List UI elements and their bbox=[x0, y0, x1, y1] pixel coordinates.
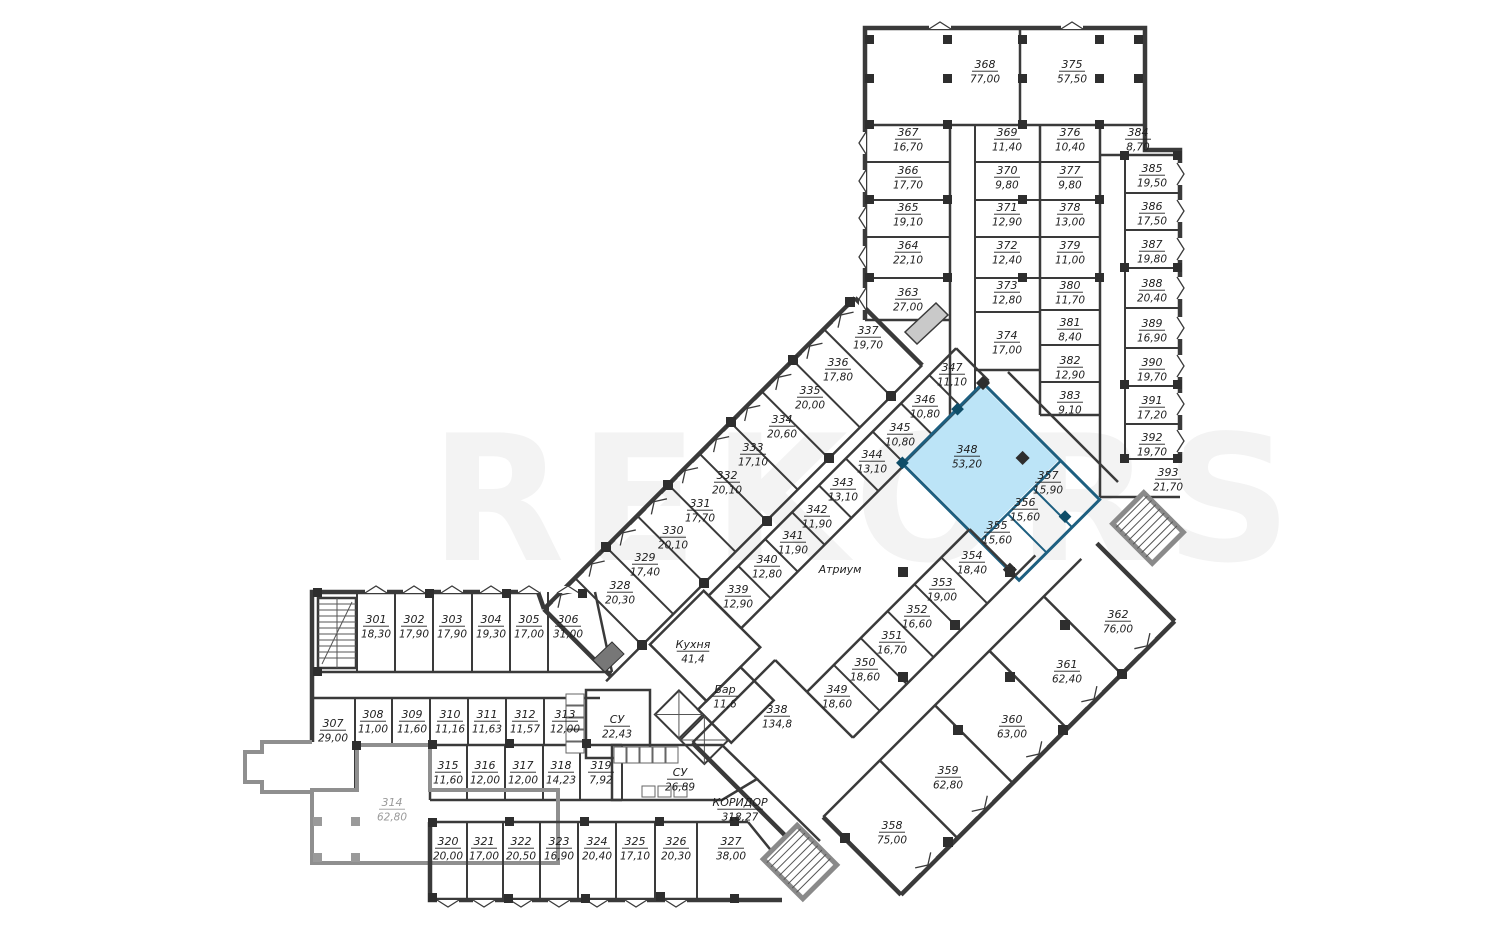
svg-text:17,80: 17,80 bbox=[823, 372, 853, 384]
svg-text:354: 354 bbox=[962, 549, 983, 562]
room-label-386-17,50[interactable]: 38617,50 bbox=[1137, 200, 1167, 228]
svg-text:367: 367 bbox=[898, 126, 919, 139]
room-label-361-62,40[interactable]: 36162,40 bbox=[1052, 658, 1082, 686]
svg-text:329: 329 bbox=[635, 551, 656, 564]
room-label-360-63,00[interactable]: 36063,00 bbox=[997, 713, 1027, 741]
room-label-Бар-11,6[interactable]: Бар11,6 bbox=[712, 683, 738, 711]
staircase-bottom bbox=[763, 825, 837, 899]
svg-text:Бар: Бар bbox=[714, 683, 735, 696]
svg-text:312: 312 bbox=[515, 708, 536, 721]
room-label-315-11,60[interactable]: 31511,60 bbox=[433, 759, 463, 787]
svg-text:12,00: 12,00 bbox=[508, 775, 538, 787]
svg-text:387: 387 bbox=[1142, 238, 1163, 251]
room-label-351-16,70[interactable]: 35116,70 bbox=[877, 629, 907, 657]
svg-text:11,57: 11,57 bbox=[510, 724, 540, 736]
svg-text:15,90: 15,90 bbox=[1033, 485, 1063, 497]
svg-text:356: 356 bbox=[1015, 496, 1036, 509]
svg-text:315: 315 bbox=[438, 759, 459, 772]
svg-text:17,70: 17,70 bbox=[685, 513, 715, 525]
room-label-359-62,80[interactable]: 35962,80 bbox=[933, 764, 963, 792]
room-label-385-19,50[interactable]: 38519,50 bbox=[1137, 162, 1167, 190]
room-label-367-16,70[interactable]: 36716,70 bbox=[893, 126, 923, 154]
svg-text:18,60: 18,60 bbox=[822, 699, 852, 711]
room-label-307-29,00[interactable]: 30729,00 bbox=[318, 717, 348, 745]
svg-text:29,00: 29,00 bbox=[318, 733, 348, 745]
svg-text:20,30: 20,30 bbox=[605, 595, 635, 607]
svg-text:381: 381 bbox=[1060, 316, 1081, 329]
svg-text:368: 368 bbox=[975, 58, 996, 71]
svg-text:12,80: 12,80 bbox=[752, 569, 782, 581]
svg-text:62,40: 62,40 bbox=[1052, 674, 1082, 686]
svg-text:9,80: 9,80 bbox=[995, 180, 1019, 192]
svg-text:26,89: 26,89 bbox=[665, 782, 695, 794]
svg-text:18,40: 18,40 bbox=[957, 565, 987, 577]
svg-text:19,70: 19,70 bbox=[1137, 372, 1167, 384]
svg-text:12,80: 12,80 bbox=[992, 295, 1022, 307]
room-label-310-11,16[interactable]: 31011,16 bbox=[435, 708, 465, 736]
svg-text:13,00: 13,00 bbox=[1055, 217, 1085, 229]
svg-text:76,00: 76,00 bbox=[1103, 624, 1133, 636]
svg-text:20,60: 20,60 bbox=[767, 429, 797, 441]
svg-text:372: 372 bbox=[997, 239, 1018, 252]
svg-text:12,90: 12,90 bbox=[992, 217, 1022, 229]
svg-text:393: 393 bbox=[1158, 466, 1179, 479]
svg-text:31,00: 31,00 bbox=[553, 629, 583, 641]
svg-text:305: 305 bbox=[519, 613, 540, 626]
svg-text:363: 363 bbox=[898, 286, 919, 299]
svg-text:341: 341 bbox=[783, 529, 804, 542]
svg-text:365: 365 bbox=[898, 201, 919, 214]
svg-text:7,92: 7,92 bbox=[589, 775, 613, 787]
svg-text:331: 331 bbox=[690, 497, 711, 510]
svg-text:379: 379 bbox=[1060, 239, 1081, 252]
svg-text:350: 350 bbox=[855, 656, 876, 669]
svg-text:388: 388 bbox=[1142, 277, 1163, 290]
svg-text:27,00: 27,00 bbox=[893, 302, 923, 314]
svg-text:327: 327 bbox=[721, 835, 742, 848]
svg-text:11,60: 11,60 bbox=[433, 775, 463, 787]
svg-text:303: 303 bbox=[442, 613, 463, 626]
svg-text:8,40: 8,40 bbox=[1058, 332, 1082, 344]
svg-text:347: 347 bbox=[942, 361, 963, 374]
svg-text:336: 336 bbox=[828, 356, 849, 369]
svg-text:11,63: 11,63 bbox=[472, 724, 502, 736]
svg-text:374: 374 bbox=[997, 329, 1018, 342]
svg-text:Атриум: Атриум bbox=[818, 563, 862, 576]
svg-text:17,90: 17,90 bbox=[437, 629, 467, 641]
room-label-308-11,00[interactable]: 30811,00 bbox=[358, 708, 388, 736]
svg-text:302: 302 bbox=[404, 613, 425, 626]
room-label-350-18,60[interactable]: 35018,60 bbox=[850, 656, 880, 684]
svg-text:333: 333 bbox=[743, 441, 764, 454]
svg-text:20,40: 20,40 bbox=[1137, 293, 1167, 305]
room-label-338-134,8[interactable]: 338134,8 bbox=[762, 703, 792, 731]
svg-text:384: 384 bbox=[1128, 126, 1149, 139]
svg-text:19,70: 19,70 bbox=[1137, 447, 1167, 459]
svg-text:308: 308 bbox=[363, 708, 384, 721]
room-label-305-17,00[interactable]: 30517,00 bbox=[514, 613, 544, 641]
svg-text:317: 317 bbox=[513, 759, 534, 772]
svg-text:20,10: 20,10 bbox=[658, 540, 688, 552]
svg-text:349: 349 bbox=[827, 683, 848, 696]
room-label-369-11,40[interactable]: 36911,40 bbox=[992, 126, 1022, 154]
svg-text:309: 309 bbox=[402, 708, 423, 721]
svg-text:383: 383 bbox=[1060, 389, 1081, 402]
svg-text:355: 355 bbox=[987, 519, 1008, 532]
svg-text:380: 380 bbox=[1060, 279, 1081, 292]
svg-text:17,90: 17,90 bbox=[399, 629, 429, 641]
svg-text:314: 314 bbox=[382, 796, 403, 809]
svg-text:343: 343 bbox=[833, 476, 854, 489]
svg-text:323: 323 bbox=[549, 835, 570, 848]
svg-text:13,10: 13,10 bbox=[857, 464, 887, 476]
room-label-СУ-26,89[interactable]: СУ26,89 bbox=[665, 766, 695, 794]
svg-text:8,70: 8,70 bbox=[1126, 142, 1150, 154]
svg-text:375: 375 bbox=[1062, 58, 1083, 71]
svg-text:11,60: 11,60 bbox=[397, 724, 427, 736]
svg-text:319: 319 bbox=[591, 759, 612, 772]
svg-text:11,10: 11,10 bbox=[937, 377, 967, 389]
svg-text:11,6: 11,6 bbox=[713, 699, 737, 711]
svg-text:Кухня: Кухня bbox=[676, 638, 711, 651]
svg-text:11,40: 11,40 bbox=[992, 142, 1022, 154]
svg-text:12,40: 12,40 bbox=[992, 255, 1022, 267]
svg-text:20,00: 20,00 bbox=[795, 400, 825, 412]
svg-text:318: 318 bbox=[551, 759, 572, 772]
svg-text:17,50: 17,50 bbox=[1137, 216, 1167, 228]
room-label-319-7,92[interactable]: 3197,92 bbox=[588, 759, 614, 787]
svg-text:334: 334 bbox=[772, 413, 793, 426]
svg-text:19,80: 19,80 bbox=[1137, 254, 1167, 266]
room-label-371-12,90[interactable]: 37112,90 bbox=[992, 201, 1022, 229]
svg-text:15,60: 15,60 bbox=[1010, 512, 1040, 524]
room-label-368-77,00[interactable]: 36877,00 bbox=[970, 58, 1000, 86]
svg-text:390: 390 bbox=[1142, 356, 1163, 369]
svg-text:11,16: 11,16 bbox=[435, 724, 465, 736]
svg-text:338: 338 bbox=[767, 703, 788, 716]
room-label-375-57,50[interactable]: 37557,50 bbox=[1057, 58, 1087, 86]
room-label-363-27,00[interactable]: 36327,00 bbox=[893, 286, 923, 314]
floor-plan-page: REKORS bbox=[0, 0, 1500, 950]
svg-text:14,23: 14,23 bbox=[546, 775, 576, 787]
svg-text:22,43: 22,43 bbox=[602, 729, 632, 741]
svg-text:63,00: 63,00 bbox=[997, 729, 1027, 741]
svg-text:364: 364 bbox=[898, 239, 919, 252]
svg-text:321: 321 bbox=[474, 835, 495, 848]
svg-text:СУ: СУ bbox=[673, 766, 689, 779]
svg-text:332: 332 bbox=[717, 469, 738, 482]
svg-text:19,00: 19,00 bbox=[927, 592, 957, 604]
room-label-322-20,50[interactable]: 32220,50 bbox=[506, 835, 536, 863]
svg-text:325: 325 bbox=[625, 835, 646, 848]
svg-text:11,90: 11,90 bbox=[778, 545, 808, 557]
svg-text:330: 330 bbox=[663, 524, 684, 537]
svg-text:41,4: 41,4 bbox=[681, 654, 704, 666]
floor-plan-canvas: REKORS bbox=[0, 0, 1500, 950]
room-label-374-17,00[interactable]: 37417,00 bbox=[992, 329, 1022, 357]
room-label-376-10,40[interactable]: 37610,40 bbox=[1055, 126, 1085, 154]
svg-text:359: 359 bbox=[938, 764, 959, 777]
svg-text:16,90: 16,90 bbox=[544, 851, 574, 863]
svg-text:316: 316 bbox=[475, 759, 496, 772]
svg-text:57,50: 57,50 bbox=[1057, 74, 1087, 86]
svg-text:38,00: 38,00 bbox=[716, 851, 746, 863]
room-label-382-12,90[interactable]: 38212,90 bbox=[1055, 354, 1085, 382]
svg-text:9,10: 9,10 bbox=[1058, 405, 1082, 417]
svg-text:13,10: 13,10 bbox=[828, 492, 858, 504]
svg-text:353: 353 bbox=[932, 576, 953, 589]
svg-text:18,60: 18,60 bbox=[850, 672, 880, 684]
svg-text:15,60: 15,60 bbox=[982, 535, 1012, 547]
svg-text:322: 322 bbox=[511, 835, 532, 848]
room-label-320-20,00[interactable]: 32020,00 bbox=[433, 835, 463, 863]
svg-text:134,8: 134,8 bbox=[762, 719, 792, 731]
svg-text:366: 366 bbox=[898, 164, 919, 177]
room-label-301-18,30[interactable]: 30118,30 bbox=[361, 613, 391, 641]
svg-text:20,50: 20,50 bbox=[506, 851, 536, 863]
room-label-321-17,00[interactable]: 32117,00 bbox=[469, 835, 499, 863]
svg-text:21,70: 21,70 bbox=[1153, 482, 1183, 494]
svg-text:20,10: 20,10 bbox=[712, 485, 742, 497]
room-label-380-11,70[interactable]: 38011,70 bbox=[1055, 279, 1085, 307]
room-label-Кухня-41,4[interactable]: Кухня41,4 bbox=[676, 638, 711, 666]
room-label-326-20,30[interactable]: 32620,30 bbox=[661, 835, 691, 863]
svg-text:378: 378 bbox=[1060, 201, 1081, 214]
svg-text:313: 313 bbox=[555, 708, 576, 721]
svg-text:9,80: 9,80 bbox=[1058, 180, 1082, 192]
room-label-325-17,10[interactable]: 32517,10 bbox=[620, 835, 650, 863]
svg-text:344: 344 bbox=[862, 448, 883, 461]
room-label-379-11,00[interactable]: 37911,00 bbox=[1055, 239, 1085, 267]
svg-text:362: 362 bbox=[1108, 608, 1129, 621]
svg-text:62,80: 62,80 bbox=[377, 812, 407, 824]
room-label-378-13,00[interactable]: 37813,00 bbox=[1055, 201, 1085, 229]
room-label-Атриум[interactable]: Атриум bbox=[818, 563, 862, 576]
room-label-377-9,80[interactable]: 3779,80 bbox=[1057, 164, 1083, 192]
svg-text:373: 373 bbox=[997, 279, 1018, 292]
svg-text:11,70: 11,70 bbox=[1055, 295, 1085, 307]
room-label-389-16,90[interactable]: 38916,90 bbox=[1137, 317, 1167, 345]
room-label-358-75,00[interactable]: 35875,00 bbox=[877, 819, 907, 847]
room-label-352-16,60[interactable]: 35216,60 bbox=[902, 603, 932, 631]
svg-text:11,00: 11,00 bbox=[1055, 255, 1085, 267]
svg-text:19,30: 19,30 bbox=[476, 629, 506, 641]
svg-text:328: 328 bbox=[610, 579, 631, 592]
room-label-324-20,40[interactable]: 32420,40 bbox=[582, 835, 612, 863]
svg-text:10,80: 10,80 bbox=[910, 409, 940, 421]
room-label-303-17,90[interactable]: 30317,90 bbox=[437, 613, 467, 641]
svg-text:385: 385 bbox=[1142, 162, 1163, 175]
room-label-306-31,00[interactable]: 30631,00 bbox=[553, 613, 583, 641]
svg-text:304: 304 bbox=[481, 613, 502, 626]
svg-text:20,00: 20,00 bbox=[433, 851, 463, 863]
room-label-349-18,60[interactable]: 34918,60 bbox=[822, 683, 852, 711]
svg-text:19,70: 19,70 bbox=[853, 340, 883, 352]
svg-text:17,70: 17,70 bbox=[893, 180, 923, 192]
svg-text:62,80: 62,80 bbox=[933, 780, 963, 792]
room-label-316-12,00[interactable]: 31612,00 bbox=[470, 759, 500, 787]
svg-text:358: 358 bbox=[882, 819, 903, 832]
svg-text:370: 370 bbox=[997, 164, 1018, 177]
room-label-387-19,80[interactable]: 38719,80 bbox=[1137, 238, 1167, 266]
svg-text:16,60: 16,60 bbox=[902, 619, 932, 631]
room-label-372-12,40[interactable]: 37212,40 bbox=[992, 239, 1022, 267]
svg-text:12,90: 12,90 bbox=[1055, 370, 1085, 382]
svg-text:326: 326 bbox=[666, 835, 687, 848]
svg-text:357: 357 bbox=[1038, 469, 1059, 482]
room-label-373-12,80[interactable]: 37312,80 bbox=[992, 279, 1022, 307]
svg-text:20,40: 20,40 bbox=[582, 851, 612, 863]
svg-text:320: 320 bbox=[438, 835, 459, 848]
svg-text:301: 301 bbox=[366, 613, 387, 626]
room-label-327-38,00[interactable]: 32738,00 bbox=[716, 835, 746, 863]
room-label-362-76,00[interactable]: 36276,00 bbox=[1103, 608, 1133, 636]
svg-text:389: 389 bbox=[1142, 317, 1163, 330]
svg-text:392: 392 bbox=[1142, 431, 1163, 444]
room-label-347-11,10[interactable]: 34711,10 bbox=[937, 361, 967, 389]
room-label-302-17,90[interactable]: 30217,90 bbox=[399, 613, 429, 641]
svg-text:371: 371 bbox=[997, 201, 1018, 214]
svg-text:17,10: 17,10 bbox=[620, 851, 650, 863]
svg-text:306: 306 bbox=[558, 613, 579, 626]
svg-text:391: 391 bbox=[1142, 394, 1163, 407]
svg-text:342: 342 bbox=[807, 503, 828, 516]
svg-text:11,00: 11,00 bbox=[358, 724, 388, 736]
svg-text:318,27: 318,27 bbox=[722, 812, 759, 824]
svg-text:386: 386 bbox=[1142, 200, 1163, 213]
room-label-370-9,80[interactable]: 3709,80 bbox=[994, 164, 1020, 192]
svg-text:377: 377 bbox=[1060, 164, 1081, 177]
room-label-309-11,60[interactable]: 30911,60 bbox=[397, 708, 427, 736]
svg-text:17,00: 17,00 bbox=[469, 851, 499, 863]
svg-text:352: 352 bbox=[907, 603, 928, 616]
svg-text:382: 382 bbox=[1060, 354, 1081, 367]
room-label-388-20,40[interactable]: 38820,40 bbox=[1137, 277, 1167, 305]
svg-text:17,00: 17,00 bbox=[514, 629, 544, 641]
room-label-314-62,80[interactable]: 31462,80 bbox=[377, 796, 407, 824]
room-label-336-17,80[interactable]: 33617,80 bbox=[823, 356, 853, 384]
svg-text:324: 324 bbox=[587, 835, 608, 848]
svg-text:75,00: 75,00 bbox=[877, 835, 907, 847]
room-label-317-12,00[interactable]: 31712,00 bbox=[508, 759, 538, 787]
svg-text:17,10: 17,10 bbox=[738, 457, 768, 469]
svg-text:СУ: СУ bbox=[610, 713, 626, 726]
svg-text:16,70: 16,70 bbox=[877, 645, 907, 657]
svg-text:361: 361 bbox=[1057, 658, 1078, 671]
svg-text:337: 337 bbox=[858, 324, 879, 337]
room-label-365-19,10[interactable]: 36519,10 bbox=[893, 201, 923, 229]
svg-text:351: 351 bbox=[882, 629, 903, 642]
svg-text:310: 310 bbox=[440, 708, 461, 721]
svg-text:53,20: 53,20 bbox=[952, 459, 982, 471]
room-label-311-11,63[interactable]: 31111,63 bbox=[472, 708, 502, 736]
room-label-364-22,10[interactable]: 36422,10 bbox=[893, 239, 923, 267]
svg-text:10,80: 10,80 bbox=[885, 437, 915, 449]
svg-text:311: 311 bbox=[477, 708, 498, 721]
room-label-390-19,70[interactable]: 39019,70 bbox=[1137, 356, 1167, 384]
svg-text:17,00: 17,00 bbox=[992, 345, 1022, 357]
svg-text:20,30: 20,30 bbox=[661, 851, 691, 863]
svg-text:376: 376 bbox=[1060, 126, 1081, 139]
svg-text:19,50: 19,50 bbox=[1137, 178, 1167, 190]
svg-text:19,10: 19,10 bbox=[893, 217, 923, 229]
svg-text:10,40: 10,40 bbox=[1055, 142, 1085, 154]
svg-text:77,00: 77,00 bbox=[970, 74, 1000, 86]
svg-text:КОРИДОР: КОРИДОР bbox=[712, 796, 768, 809]
svg-text:11,90: 11,90 bbox=[802, 519, 832, 531]
svg-text:335: 335 bbox=[800, 384, 821, 397]
svg-text:18,30: 18,30 bbox=[361, 629, 391, 641]
svg-text:16,90: 16,90 bbox=[1137, 333, 1167, 345]
room-label-304-19,30[interactable]: 30419,30 bbox=[476, 613, 506, 641]
svg-text:17,40: 17,40 bbox=[630, 567, 660, 579]
svg-text:17,20: 17,20 bbox=[1137, 410, 1167, 422]
svg-text:22,10: 22,10 bbox=[893, 255, 923, 267]
room-label-СУ-22,43[interactable]: СУ22,43 bbox=[602, 713, 632, 741]
svg-text:360: 360 bbox=[1002, 713, 1023, 726]
room-label-312-11,57[interactable]: 31211,57 bbox=[510, 708, 540, 736]
staircase-left bbox=[318, 598, 356, 668]
svg-text:346: 346 bbox=[915, 393, 936, 406]
room-label-381-8,40[interactable]: 3818,40 bbox=[1057, 316, 1083, 344]
room-label-337-19,70[interactable]: 33719,70 bbox=[853, 324, 883, 352]
svg-text:12,00: 12,00 bbox=[550, 724, 580, 736]
svg-text:12,00: 12,00 bbox=[470, 775, 500, 787]
svg-text:339: 339 bbox=[728, 583, 749, 596]
svg-text:340: 340 bbox=[757, 553, 778, 566]
svg-text:348: 348 bbox=[957, 443, 978, 456]
svg-text:12,90: 12,90 bbox=[723, 599, 753, 611]
room-label-318-14,23[interactable]: 31814,23 bbox=[546, 759, 576, 787]
svg-text:345: 345 bbox=[890, 421, 911, 434]
svg-text:16,70: 16,70 bbox=[893, 142, 923, 154]
svg-text:369: 369 bbox=[997, 126, 1018, 139]
svg-text:307: 307 bbox=[323, 717, 344, 730]
room-label-366-17,70[interactable]: 36617,70 bbox=[893, 164, 923, 192]
